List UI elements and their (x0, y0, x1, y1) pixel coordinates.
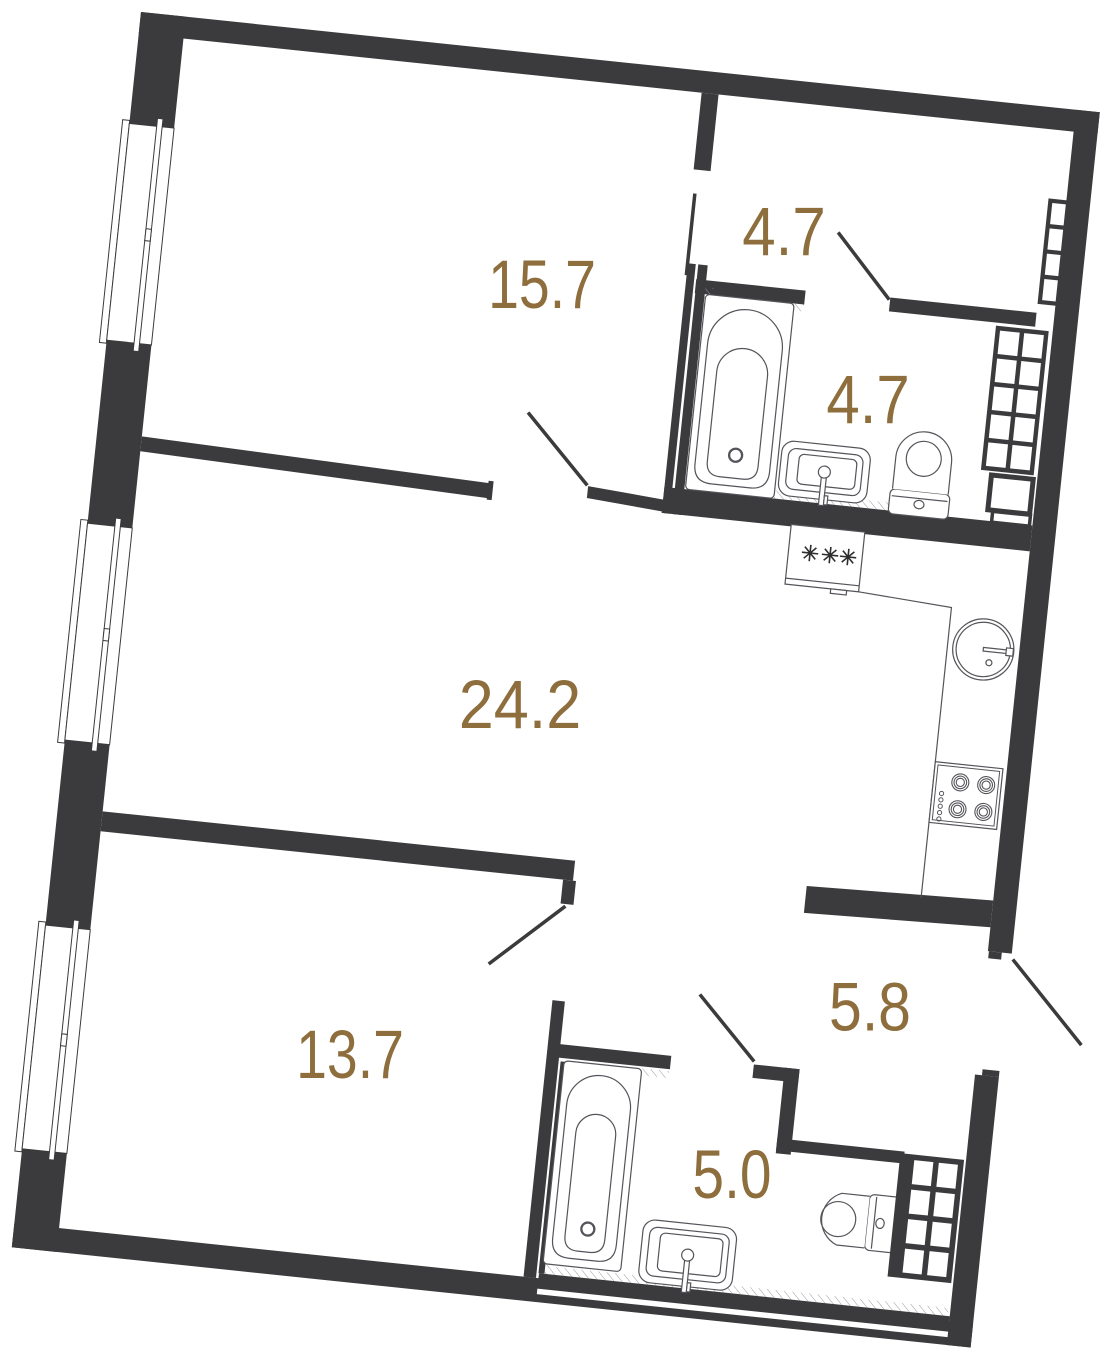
svg-text:24.2: 24.2 (459, 665, 581, 742)
svg-text:4.7: 4.7 (826, 361, 909, 438)
svg-text:5.0: 5.0 (692, 1137, 771, 1213)
svg-text:4.7: 4.7 (742, 192, 825, 270)
svg-text:5.8: 5.8 (829, 968, 911, 1045)
svg-text:13.7: 13.7 (296, 1016, 404, 1093)
svg-text:15.7: 15.7 (488, 246, 596, 323)
